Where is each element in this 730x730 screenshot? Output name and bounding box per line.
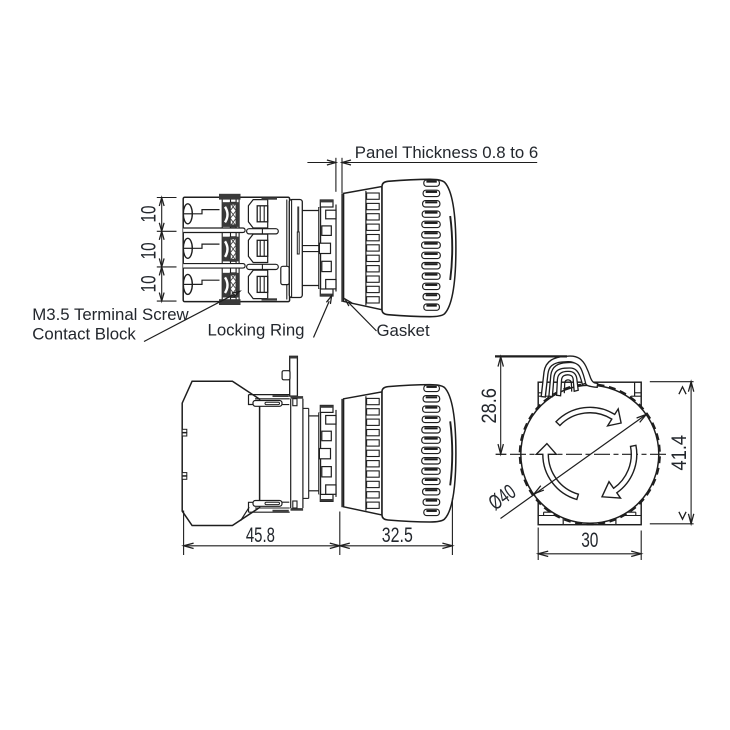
svg-text:28.6: 28.6: [478, 388, 501, 424]
svg-text:Contact Block: Contact Block: [32, 325, 136, 344]
svg-text:10: 10: [138, 206, 161, 223]
svg-text:32.5: 32.5: [382, 524, 413, 547]
svg-text:45.8: 45.8: [246, 524, 275, 547]
svg-text:41.4: 41.4: [668, 435, 691, 471]
svg-text:Locking Ring: Locking Ring: [208, 321, 305, 340]
svg-text:30: 30: [581, 529, 598, 552]
svg-text:10: 10: [138, 275, 161, 292]
svg-text:Panel Thickness 0.8 to 6: Panel Thickness 0.8 to 6: [355, 143, 538, 162]
svg-text:Gasket: Gasket: [377, 321, 431, 340]
svg-text:M3.5 Terminal Screw: M3.5 Terminal Screw: [32, 305, 189, 324]
svg-text:10: 10: [138, 242, 161, 259]
